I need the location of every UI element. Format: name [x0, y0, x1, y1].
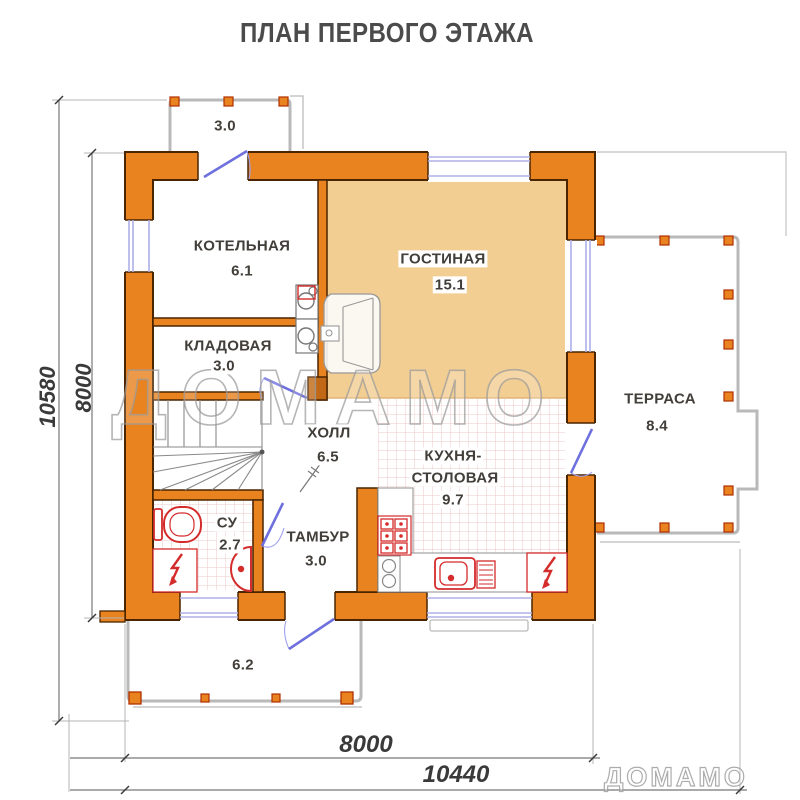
room-area-vestibule: 3.0 — [303, 552, 329, 569]
room-label-living: ГОСТИНАЯ — [398, 250, 487, 267]
porch-post — [341, 692, 353, 704]
porch-bottom-area: 6.2 — [230, 656, 256, 673]
dimension-bottom-inner: 8000 — [339, 731, 392, 759]
stove-icon — [378, 516, 411, 555]
terrace-post — [660, 523, 669, 532]
porch-top-area: 3.0 — [212, 117, 238, 134]
boiler-fixtures — [296, 285, 318, 353]
door-entrance — [289, 619, 334, 649]
room-label-boiler: КОТЕЛЬНАЯ — [192, 237, 292, 254]
room-area-bathroom: 2.7 — [217, 536, 243, 553]
room-area-terrace: 8.4 — [644, 417, 670, 434]
room-area-living: 15.1 — [433, 276, 467, 293]
room-label-vestibule: ТАМБУР — [284, 528, 351, 545]
water-heater — [383, 575, 396, 588]
room-area-kitchen: 9.7 — [440, 491, 466, 508]
terrace-post — [724, 290, 733, 299]
room-label-kitchen-line1: КУХНЯ- — [422, 447, 483, 464]
room-label-storage: КЛАДОВАЯ — [182, 337, 274, 354]
toilet-icon — [154, 507, 201, 542]
terrace — [595, 236, 757, 542]
terrace-post — [724, 523, 733, 532]
dimension-bottom-outer: 10440 — [423, 761, 490, 789]
porch-post — [129, 692, 141, 704]
porch-post — [201, 694, 209, 702]
room-label-bathroom: СУ — [215, 514, 240, 531]
terrace-post — [660, 236, 669, 245]
room-area-hall: 6.5 — [315, 448, 341, 465]
dimension-left-inner: 8000 — [71, 364, 97, 413]
door-bathroom — [262, 503, 283, 546]
roof-overhang-line — [597, 152, 786, 236]
room-label-kitchen-line2: СТОЛОВАЯ — [410, 469, 501, 486]
terrace-post — [724, 486, 733, 495]
kitchen-sink-icon — [435, 558, 495, 589]
room-area-boiler: 6.1 — [229, 262, 255, 279]
porch-post — [170, 97, 179, 106]
terrace-post — [724, 340, 733, 349]
page-title: ПЛАН ПЕРВОГО ЭТАЖА — [240, 17, 534, 49]
watermark-small: ДОМАМО — [604, 762, 748, 792]
terrace-post — [724, 392, 733, 401]
porch-post — [272, 694, 280, 702]
dimension-left-outer: 10580 — [35, 366, 61, 427]
porch-post — [224, 97, 233, 106]
electric-panel-box — [153, 549, 197, 592]
room-area-storage: 3.0 — [211, 357, 237, 374]
wall-pier — [100, 611, 125, 622]
floor-plan-canvas: ДОМАМО ДОМАМО ПЛАН ПЕРВОГО ЭТАЖА 3.0 КОТ… — [0, 0, 800, 800]
porch-post — [279, 97, 288, 106]
terrace-post — [595, 523, 604, 532]
room-label-hall: ХОЛЛ — [305, 424, 352, 441]
terrace-post — [724, 236, 733, 245]
window-sill — [430, 620, 528, 631]
water-heater — [383, 560, 396, 573]
room-label-terrace: ТЕРРАСА — [622, 390, 698, 407]
